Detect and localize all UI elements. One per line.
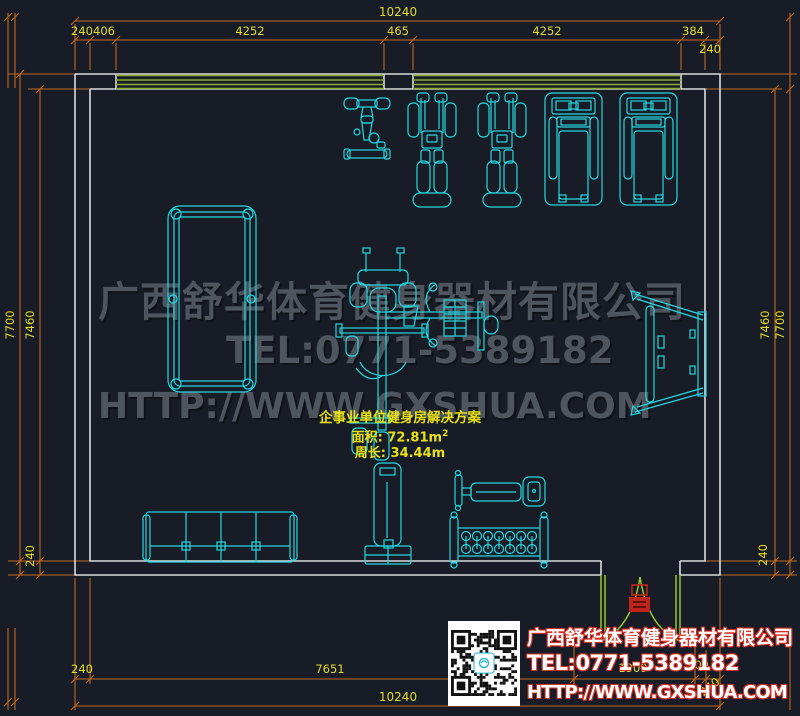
- dim-left-7460: 7460: [23, 310, 37, 339]
- footer-web: HTTP://WWW.GXSHUA.COM: [527, 682, 787, 703]
- strength-machine-2: [478, 93, 526, 207]
- plan-annotation: 企事业单位健身房解决方案 面积: 72.81m2 周长: 34.44m: [250, 410, 550, 462]
- dim-bottom-240a: 240: [71, 662, 93, 676]
- treadmill-1: [545, 93, 602, 205]
- exercise-bike: [344, 98, 390, 159]
- door-stop-icon: [629, 585, 650, 612]
- window-band: [116, 76, 681, 89]
- dim-top-406: 406: [93, 24, 115, 38]
- wechat-qr-code: [448, 621, 520, 706]
- dim-bottom-7651: 7651: [315, 662, 344, 676]
- incline-board: [631, 291, 706, 415]
- dim-left-7700: 7700: [3, 310, 17, 339]
- dim-right-240: 240: [756, 544, 770, 566]
- plan-title: 企事业单位健身房解决方案: [250, 410, 550, 426]
- dim-top-465: 465: [387, 24, 409, 38]
- dimension-layer: [4, 13, 797, 710]
- dim-top-total: 10240: [379, 5, 417, 19]
- plan-perimeter: 周长: 34.44m: [250, 446, 550, 462]
- treadmill-2: [620, 93, 677, 205]
- dim-left-240: 240: [23, 545, 37, 567]
- dim-top-240b: 240: [699, 42, 721, 56]
- billiard-table: [168, 206, 256, 392]
- dim-top-4252a: 4252: [235, 24, 264, 38]
- footer-tel: TEL:0771-5389182: [527, 651, 739, 675]
- dim-right-7700: 7700: [773, 310, 787, 339]
- dim-top-4252b: 4252: [532, 24, 561, 38]
- dim-right-7460: 7460: [758, 310, 772, 339]
- dim-top-384: 384: [682, 24, 704, 38]
- footer-company: 广西舒华体育健身器材有限公司: [527, 623, 793, 650]
- strength-machine-1: [408, 93, 456, 207]
- boxing-stand: [365, 463, 411, 564]
- waiting-sofa: [143, 512, 297, 562]
- walls: [75, 74, 720, 575]
- flat-bench: [455, 471, 545, 511]
- dim-top-240a: 240: [71, 24, 93, 38]
- dumbbell-rack: [450, 512, 548, 568]
- drawing-layer: 10240 240 406 4252 465 4252 384 240 7700…: [0, 0, 800, 716]
- plan-area: 面积: 72.81m2: [250, 426, 550, 446]
- cad-floor-plan-canvas: 广西舒华体育健身器材有限公司 TEL:0771-5389182 HTTP://W…: [0, 0, 800, 716]
- dim-bottom-total: 10240: [379, 690, 417, 704]
